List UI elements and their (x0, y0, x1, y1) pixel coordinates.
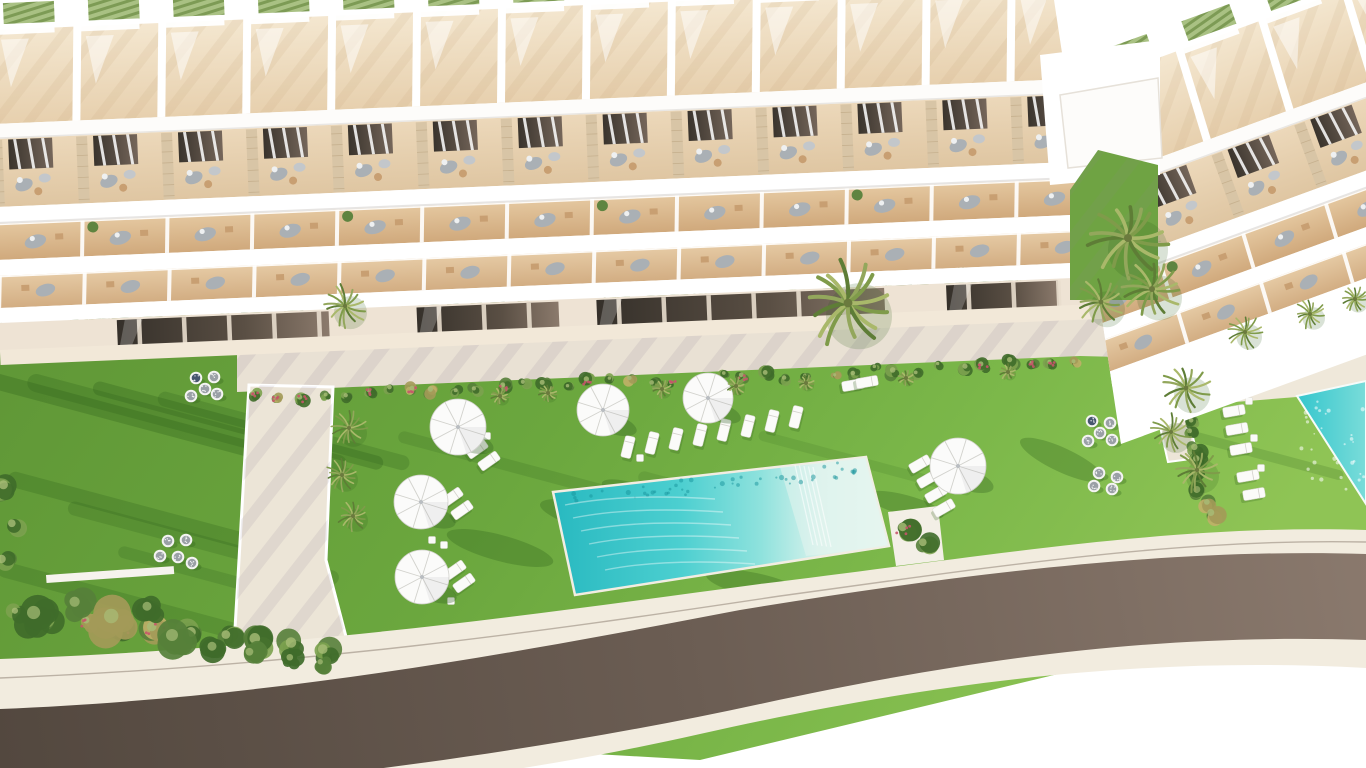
side-table (1251, 435, 1258, 442)
aerial-view-canvas (0, 0, 1366, 768)
side-table (1258, 465, 1265, 472)
resort-aerial-rendering (0, 0, 1366, 768)
side-table (441, 542, 448, 549)
side-table (1246, 398, 1253, 405)
building-main (0, 0, 1108, 365)
side-table (429, 537, 436, 544)
side-table (637, 455, 644, 462)
